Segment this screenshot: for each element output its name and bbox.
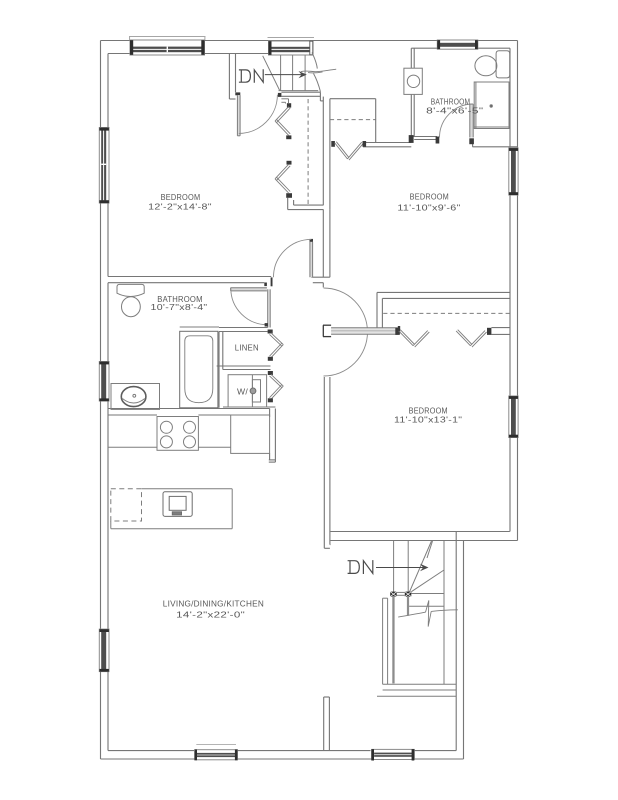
svg-text:W/: W/	[237, 386, 248, 396]
svg-text:LINEN: LINEN	[235, 342, 259, 352]
svg-text:14'-2"x22'-0": 14'-2"x22'-0"	[176, 609, 245, 619]
svg-text:11'-10"x9'-6": 11'-10"x9'-6"	[397, 203, 460, 213]
svg-text:BEDROOM: BEDROOM	[161, 192, 201, 202]
svg-text:12'-2"x14'-8": 12'-2"x14'-8"	[148, 202, 212, 212]
svg-text:BEDROOM: BEDROOM	[410, 192, 449, 202]
svg-text:8'-4"x6'-5": 8'-4"x6'-5"	[426, 105, 483, 115]
svg-text:10'-7"x8'-4": 10'-7"x8'-4"	[151, 302, 208, 312]
svg-text:11'-10"x13'-1": 11'-10"x13'-1"	[394, 415, 462, 425]
svg-text:LIVING/DINING/KITCHEN: LIVING/DINING/KITCHEN	[163, 599, 264, 609]
